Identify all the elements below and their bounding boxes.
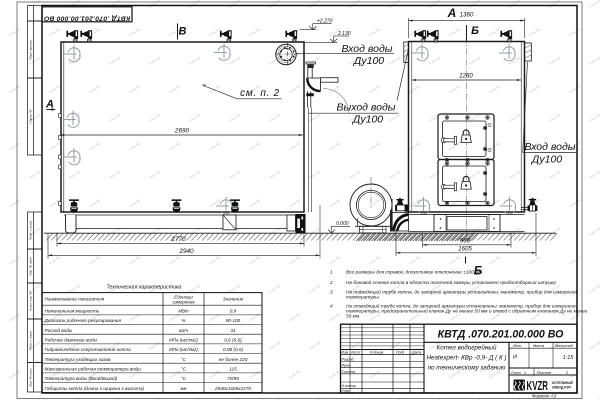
svg-text:температуры, предохранительный: температуры, предохранительный клапан Ду… [346,307,588,314]
svg-text:1: 1 [330,270,333,276]
svg-text:0,9: 0,9 [230,309,237,314]
svg-text:960: 960 [460,238,471,245]
svg-text:На боковой стенке котла в обла: На боковой стенке котла в области топочн… [346,279,556,286]
svg-text:Подп. и дата: Подп. и дата [29,331,33,351]
svg-text:Техническая характеристика: Техническая характеристика [107,284,182,290]
svg-text:МПа (кгс/см2): МПа (кгс/см2) [169,338,198,343]
svg-text:Б: Б [471,25,479,37]
svg-text:На подводящий трубе котла, д: На подводящий трубе котла, до запорной а… [346,289,577,296]
svg-text:Т.контр.: Т.контр. [342,370,357,374]
svg-text:КВТД .070.201.00.000 ВО: КВТД .070.201.00.000 ВО [438,329,564,341]
svg-text:3: 3 [330,290,333,296]
svg-text:м3/ч: м3/ч [179,328,189,333]
svg-text:Вход воды: Вход воды [342,43,393,55]
svg-text:Номинальная мощность: Номинальная мощность [45,309,100,314]
svg-text:0,06 (0,6): 0,06 (0,6) [223,347,244,352]
svg-text:КВТД .070.201.00.000 ВО: КВТД .070.201.00.000 ВО [43,15,130,22]
svg-text:не более 220: не более 220 [219,357,248,362]
svg-text:Выход воды: Выход воды [336,102,395,114]
svg-text:2940: 2940 [178,248,194,255]
svg-text:2940х1605х2270: 2940х1605х2270 [214,386,251,391]
svg-text:Н.контр.: Н.контр. [342,384,357,388]
svg-text:Масштаб: Масштаб [555,344,574,348]
svg-text:Подп. и дата: Подп. и дата [29,221,33,241]
svg-text:1360: 1360 [460,12,474,19]
svg-text:2690: 2690 [174,128,190,135]
svg-text:Вход воды: Вход воды [525,141,576,153]
svg-text:А: А [447,6,457,20]
svg-text:см. п. 2: см. п. 2 [240,88,280,99]
svg-text:Ду100: Ду100 [353,55,384,67]
svg-text:Рабочее давление воды: Рабочее давление воды [45,338,98,343]
svg-text:Ду100: Ду100 [352,114,383,126]
svg-text:2: 2 [329,280,333,286]
svg-text:°С: °С [181,357,187,362]
svg-text:Лит.: Лит. [512,344,522,348]
svg-text:И: И [513,355,517,361]
svg-text:Изм.: Изм. [342,351,349,355]
svg-text:На отводящий трубе котла, до з: На отводящий трубе котла, до запорной ар… [346,302,576,309]
svg-text:Диапазон рабочего регулировани: Диапазон рабочего регулирования [44,318,122,323]
svg-text:Справ. №: Справ. № [29,109,33,124]
svg-text:Перв. примен.: Перв. примен. [29,39,33,60]
svg-text:Взам. инв. №: Взам. инв. № [29,291,33,311]
svg-text:Значение: Значение [223,297,244,302]
svg-text:Котел водогрейный: Котел водогрейный [437,344,497,352]
svg-text:Расход воды: Расход воды [45,328,73,333]
svg-text:МВт: МВт [178,309,189,314]
svg-text:1: 1 [524,371,526,375]
svg-text:В: В [179,26,187,38]
svg-text:Температура воды (Вход/Выход): Температура воды (Вход/Выход) [45,376,118,381]
svg-text:Габариты котла (длина х ширина: Габариты котла (длина х ширина х высота) [45,386,145,391]
svg-text:мм: мм [180,386,186,391]
svg-text:Подп.: Подп. [396,351,405,355]
svg-text:Лист: Лист [350,351,360,355]
svg-text:Масса: Масса [533,344,544,348]
svg-text:Все размеры для справок, допус: Все размеры для справок, допустимое откл… [346,270,483,276]
svg-text:1:15: 1:15 [563,355,575,361]
svg-text:1260: 1260 [459,73,473,80]
svg-text:Максимальная рабочая температу: Максимальная рабочая температура воды [45,367,142,372]
svg-text:ЗАВОД РЭП: ЗАВОД РЭП [552,386,572,390]
svg-text:Формат А3: Формат А3 [532,393,557,398]
svg-text:Ду100: Ду100 [531,154,562,166]
svg-text:Температура уходящих газов: Температура уходящих газов [45,357,112,362]
svg-text:KVZR: KVZR [527,379,549,393]
svg-text:Инв. № дубл.: Инв. № дубл. [29,256,33,275]
svg-text:Гидравлическое сопротивление к: Гидравлическое сопротивление котла [45,347,132,352]
svg-text:4: 4 [330,303,333,309]
svg-text:1605: 1605 [458,245,472,252]
svg-text:Разраб.: Разраб. [342,357,355,361]
svg-text:температуры.: температуры. [346,296,380,301]
svg-text:Утв.: Утв. [342,389,350,393]
svg-text:2770: 2770 [170,236,186,243]
svg-text:°С: °С [181,367,187,372]
svg-text:°С: °С [181,376,187,381]
svg-text:Наименование показателя: Наименование показателя [45,297,105,302]
svg-text:50-100: 50-100 [226,318,241,323]
svg-text:50 мм.: 50 мм. [346,313,360,319]
svg-text:31: 31 [230,328,236,333]
svg-text:%: % [182,318,186,323]
svg-text:+2.270: +2.270 [317,18,333,24]
svg-text:Пров.: Пров. [342,364,351,368]
svg-text:КОТЕЛЬНЫЙ: КОТЕЛЬНЫЙ [552,381,573,385]
svg-text:70/95: 70/95 [227,376,239,381]
svg-text:Лист: Лист [510,371,521,375]
svg-text:Листов: Листов [536,371,551,375]
svg-text:Инв. № подл.: Инв. № подл. [29,368,33,387]
svg-text:МПа (кгс/см2): МПа (кгс/см2) [169,347,198,352]
svg-text:Дата: Дата [411,351,421,355]
svg-text:Heatexpert- КВр -0,9- Д ( К ): Heatexpert- КВр -0,9- Д ( К ) [426,355,506,362]
svg-text:0,6 (6,0): 0,6 (6,0) [224,338,242,343]
svg-text:по техническому заданию: по техническому заданию [428,364,506,372]
svg-text:115: 115 [229,367,237,372]
svg-text:измерения: измерения [173,300,196,305]
svg-text:N докум.: N докум. [370,351,384,355]
